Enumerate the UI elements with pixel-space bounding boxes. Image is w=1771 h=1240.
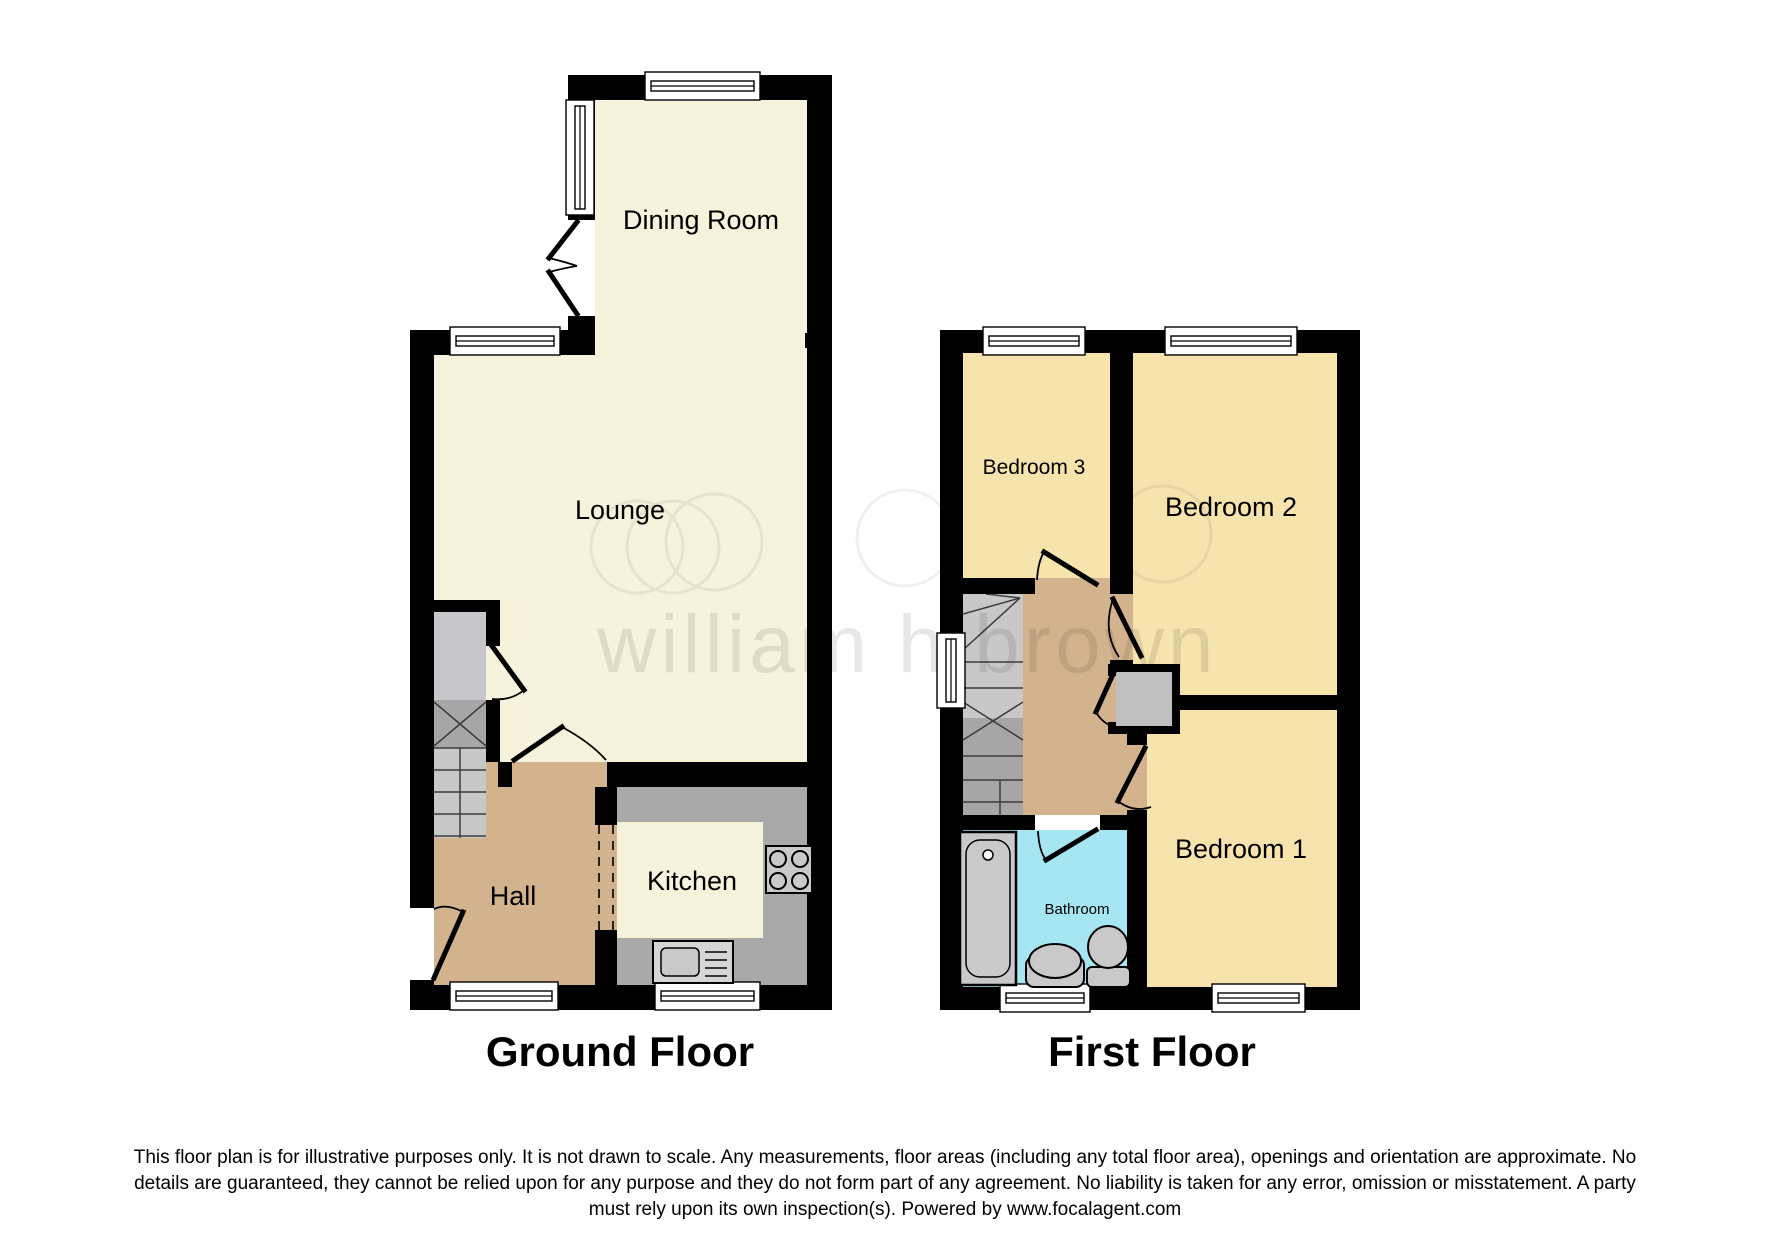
ground-floor-plan: Dining Room Lounge Hall Kitchen (410, 72, 832, 1010)
kitchen-window (655, 982, 760, 1010)
bedroom3-label: Bedroom 3 (983, 456, 1086, 479)
bedroom2-label: Bedroom 2 (1165, 492, 1297, 522)
hall-label: Hall (490, 881, 537, 911)
bathroom-label: Bathroom (1044, 901, 1109, 918)
dining-room-label: Dining Room (623, 205, 779, 235)
floor-plan-page: Dining Room Lounge Hall Kitchen (0, 0, 1771, 1240)
disclaimer-line-1: This floor plan is for illustrative purp… (134, 1147, 1636, 1168)
toilet (1026, 944, 1084, 987)
dining-room-top-window (645, 72, 760, 100)
basin (1087, 926, 1130, 987)
lounge-label: Lounge (575, 495, 665, 525)
disclaimer-line-2: details are guaranteed, they cannot be r… (134, 1173, 1636, 1194)
kitchen-label: Kitchen (647, 866, 737, 896)
bath-tap (983, 850, 993, 860)
bedroom2-window (1165, 327, 1297, 355)
front-door-opening (410, 908, 434, 980)
gf-understairs-cupboard (434, 610, 486, 700)
gf-stairs-cupboard (434, 610, 486, 838)
kitchen-hall-opening (595, 825, 617, 930)
sink-unit (653, 941, 733, 983)
hob (766, 846, 812, 893)
french-door-opening (568, 220, 595, 316)
bedroom3-window (983, 327, 1085, 355)
disclaimer-line-3: must rely upon its own inspection(s). Po… (589, 1199, 1181, 1220)
watermark-text: william h brown (596, 599, 1218, 690)
disclaimer: This floor plan is for illustrative purp… (134, 1147, 1637, 1220)
first-floor-title: First Floor (1048, 1028, 1256, 1075)
bathtub (960, 832, 1016, 985)
hall-doorway-floor (512, 762, 607, 787)
lounge-window (450, 327, 560, 355)
bedroom1-window (1212, 984, 1305, 1012)
hall-window (450, 982, 558, 1010)
bathroom-window (1000, 984, 1090, 1012)
dining-room-side-window (566, 100, 594, 215)
bedroom1-label: Bedroom 1 (1175, 834, 1307, 864)
floor-plan-drawing: Dining Room Lounge Hall Kitchen (0, 0, 1771, 1240)
ground-floor-title: Ground Floor (486, 1028, 754, 1075)
